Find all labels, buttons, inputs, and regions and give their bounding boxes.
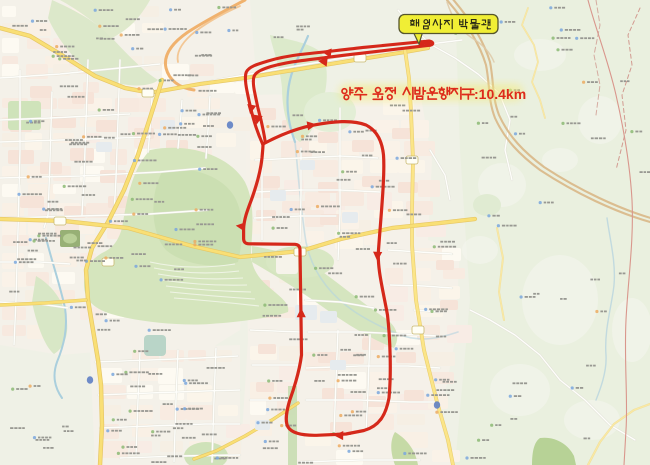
svg-text::10.4km: :10.4km [474, 86, 526, 102]
